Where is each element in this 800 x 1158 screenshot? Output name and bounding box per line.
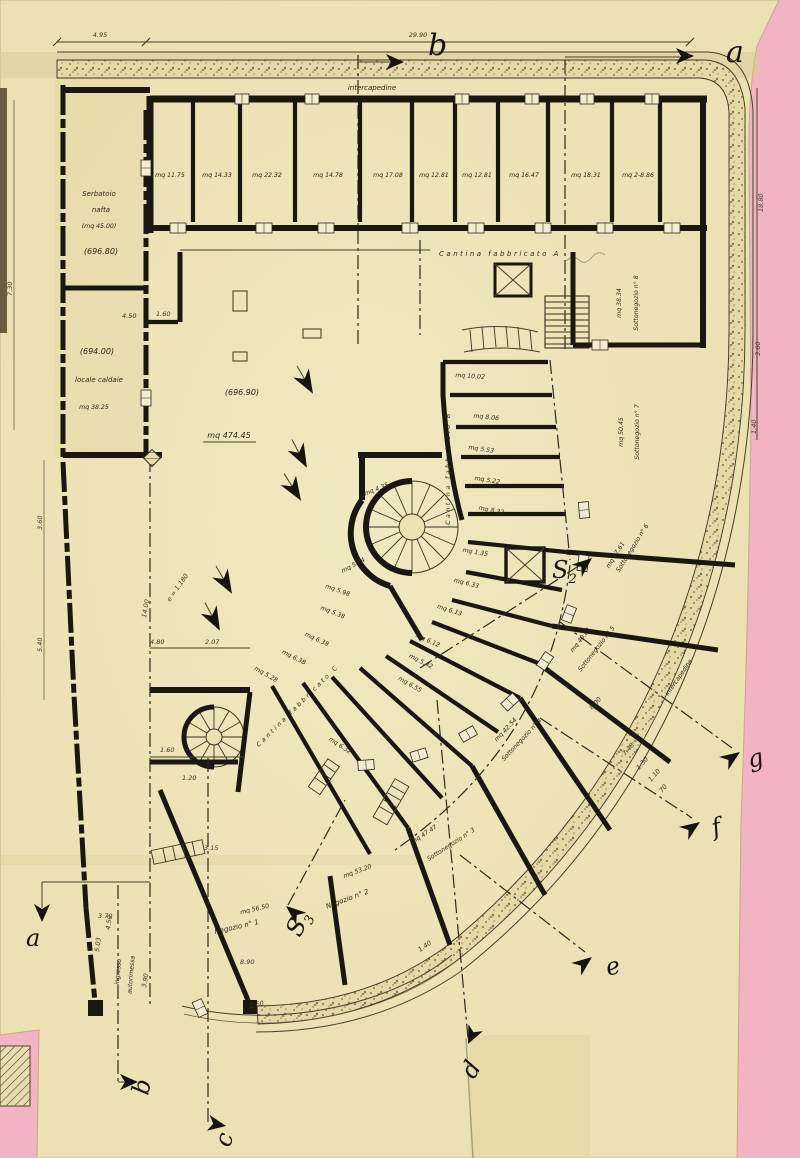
door-symbol (170, 223, 186, 233)
dim-207: 2.07 (205, 638, 220, 646)
serbatoio-label-1: Serbatoio (82, 190, 116, 198)
door-symbol (592, 340, 608, 350)
dim-370: 3.70 (98, 912, 112, 920)
cellar-room-label: mq 14.78 (313, 172, 343, 179)
cellar-room-label: mq 12.81 (462, 172, 492, 179)
door-symbol (318, 223, 334, 233)
cellar-room-label: mq 2-8.86 (622, 172, 654, 179)
shop-s7-name: Sottonegozio n° 7 (633, 404, 641, 459)
cellar-room-label: mq 12.81 (419, 172, 449, 179)
door-symbol (455, 94, 469, 104)
marker-bottom-a-letter: a (26, 924, 40, 952)
dim-140r: 1.40 (750, 420, 758, 434)
crease-mid (0, 855, 420, 865)
spiral-stair-upper (366, 481, 458, 573)
door-symbol (305, 94, 319, 104)
dim-360l: 3.60 (36, 516, 44, 530)
shop-s8-name: Sottonegozio n° 8 (632, 275, 640, 330)
dim-890: 8.90 (240, 958, 254, 966)
wall-end-block (88, 1000, 103, 1016)
cellar-room-label: mq 11.75 (155, 172, 185, 179)
cellar-room-label: mq 22.32 (252, 172, 282, 179)
dim-120: 1.20 (182, 774, 196, 782)
dim-160b: 1.60 (160, 746, 174, 754)
door-symbol (141, 390, 151, 406)
level-69680: (696.80) (84, 247, 118, 256)
door-symbol (535, 223, 551, 233)
door-symbol (645, 94, 659, 104)
intercapedine-top-label: intercapedine (348, 84, 396, 92)
dim-1880: 18.80 (757, 193, 765, 212)
spiral-stair-lower (184, 707, 244, 767)
shop-s8-area: mq 38.34 (616, 288, 623, 318)
door-symbol (580, 94, 594, 104)
dim-495: 4.95 (93, 31, 107, 39)
shop-s7-area: mq 50.45 (618, 417, 625, 447)
door-symbol (664, 223, 680, 233)
s2-letter: S (552, 556, 568, 584)
cellar-room-label: mq 14.33 (202, 172, 232, 179)
serbatoio-label-2: nafta (92, 206, 110, 214)
door-symbol (256, 223, 272, 233)
corner-hatch-box (0, 1046, 30, 1106)
door-symbol (597, 223, 613, 233)
door-symbol (578, 502, 589, 519)
dim-315: 3.15 (204, 844, 218, 852)
caldaie-label: locale caldaie (75, 376, 123, 384)
door-symbol (141, 160, 151, 176)
marker-top-a-letter: a (726, 35, 744, 70)
caldaie-area: mq 38.25 (79, 404, 109, 411)
s2-subscript: 2 (567, 572, 576, 587)
blueprint-scan: intercapedine intercapedine 4.95 29.90 b… (0, 0, 800, 1158)
cellar-room-label: mq 18.31 (571, 172, 601, 179)
crease-left (55, 78, 150, 458)
crease-bottom-right (470, 1035, 590, 1158)
dim-450: 4.50 (122, 312, 136, 320)
cantina-a-label: Cantina fabbricato A (439, 250, 561, 258)
dim-730: 7.30 (6, 282, 14, 296)
dim-540: 5.40 (36, 638, 44, 652)
cantina-b-label: Cantina fabbricato B (444, 411, 452, 525)
dim-160: 1.60 (156, 310, 170, 318)
dim-2990: 29.90 (409, 31, 428, 39)
serbatoio-area: (mq 45.00) (82, 223, 116, 230)
cellar-room-label: mq 17.08 (373, 172, 403, 179)
door-symbol (525, 94, 539, 104)
dim-360r: 3.60 (754, 342, 762, 356)
door-symbol (235, 94, 249, 104)
door-symbol (468, 223, 484, 233)
marker-top-b-letter: b (428, 28, 447, 63)
dim-480: 4.80 (150, 638, 164, 646)
cellar-room-label: mq 16.47 (509, 172, 539, 179)
level-69400: (694.00) (80, 347, 114, 356)
door-symbol (402, 223, 418, 233)
hall-area-total: mq 474.45 (207, 431, 250, 440)
door-symbol (358, 759, 375, 770)
level-69690: (696.90) (225, 388, 259, 397)
